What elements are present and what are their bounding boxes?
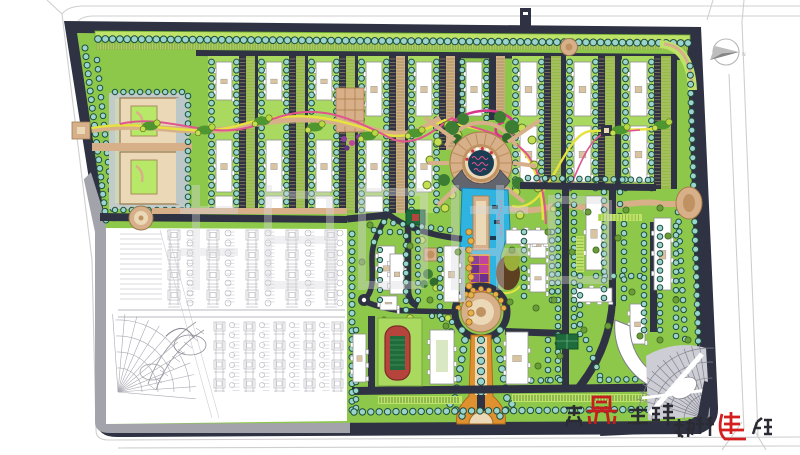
svg-text:N: N	[742, 52, 746, 58]
